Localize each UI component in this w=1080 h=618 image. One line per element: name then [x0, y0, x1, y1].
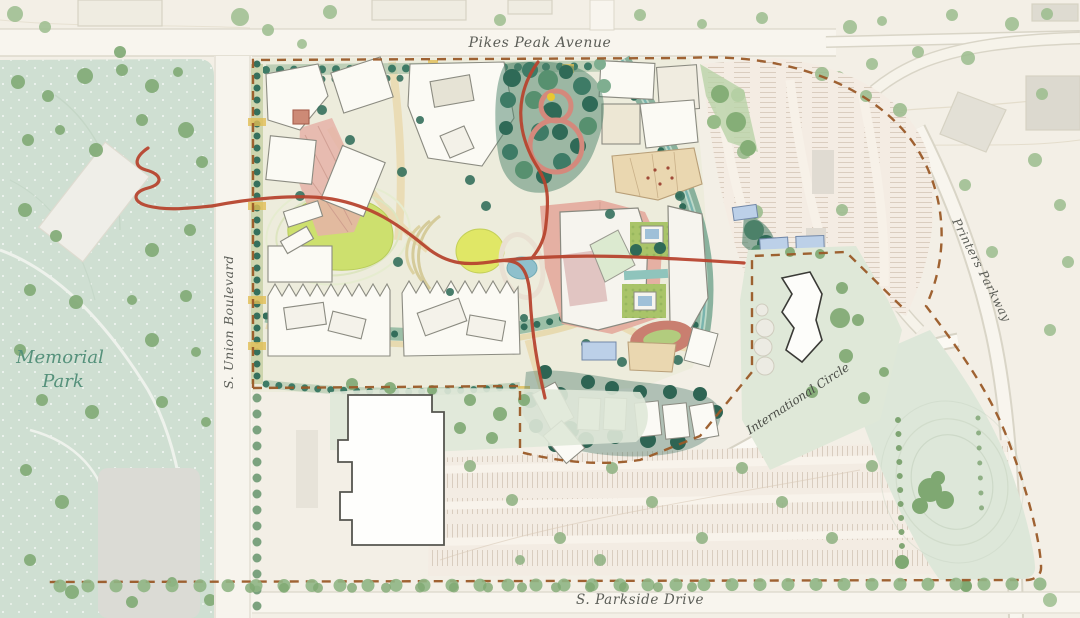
buildings-northeast	[599, 61, 702, 200]
label-s-union-boulevard: S. Union Boulevard	[221, 255, 236, 389]
park-parking-pad	[98, 468, 200, 618]
label-memorial-park-line2: Park	[41, 371, 84, 392]
site-plan-map: Pikes Peak Avenue Memorial Park S. Union…	[0, 0, 1080, 618]
existing-office-building	[338, 395, 444, 545]
site-plan-page: Pikes Peak Avenue Memorial Park S. Union…	[0, 0, 1080, 618]
memorial-park	[0, 46, 216, 618]
label-pikes-peak-avenue: Pikes Peak Avenue	[468, 35, 612, 51]
label-s-parkside-drive: S. Parkside Drive	[576, 592, 704, 608]
label-memorial-park-line1: Memorial	[15, 347, 104, 368]
